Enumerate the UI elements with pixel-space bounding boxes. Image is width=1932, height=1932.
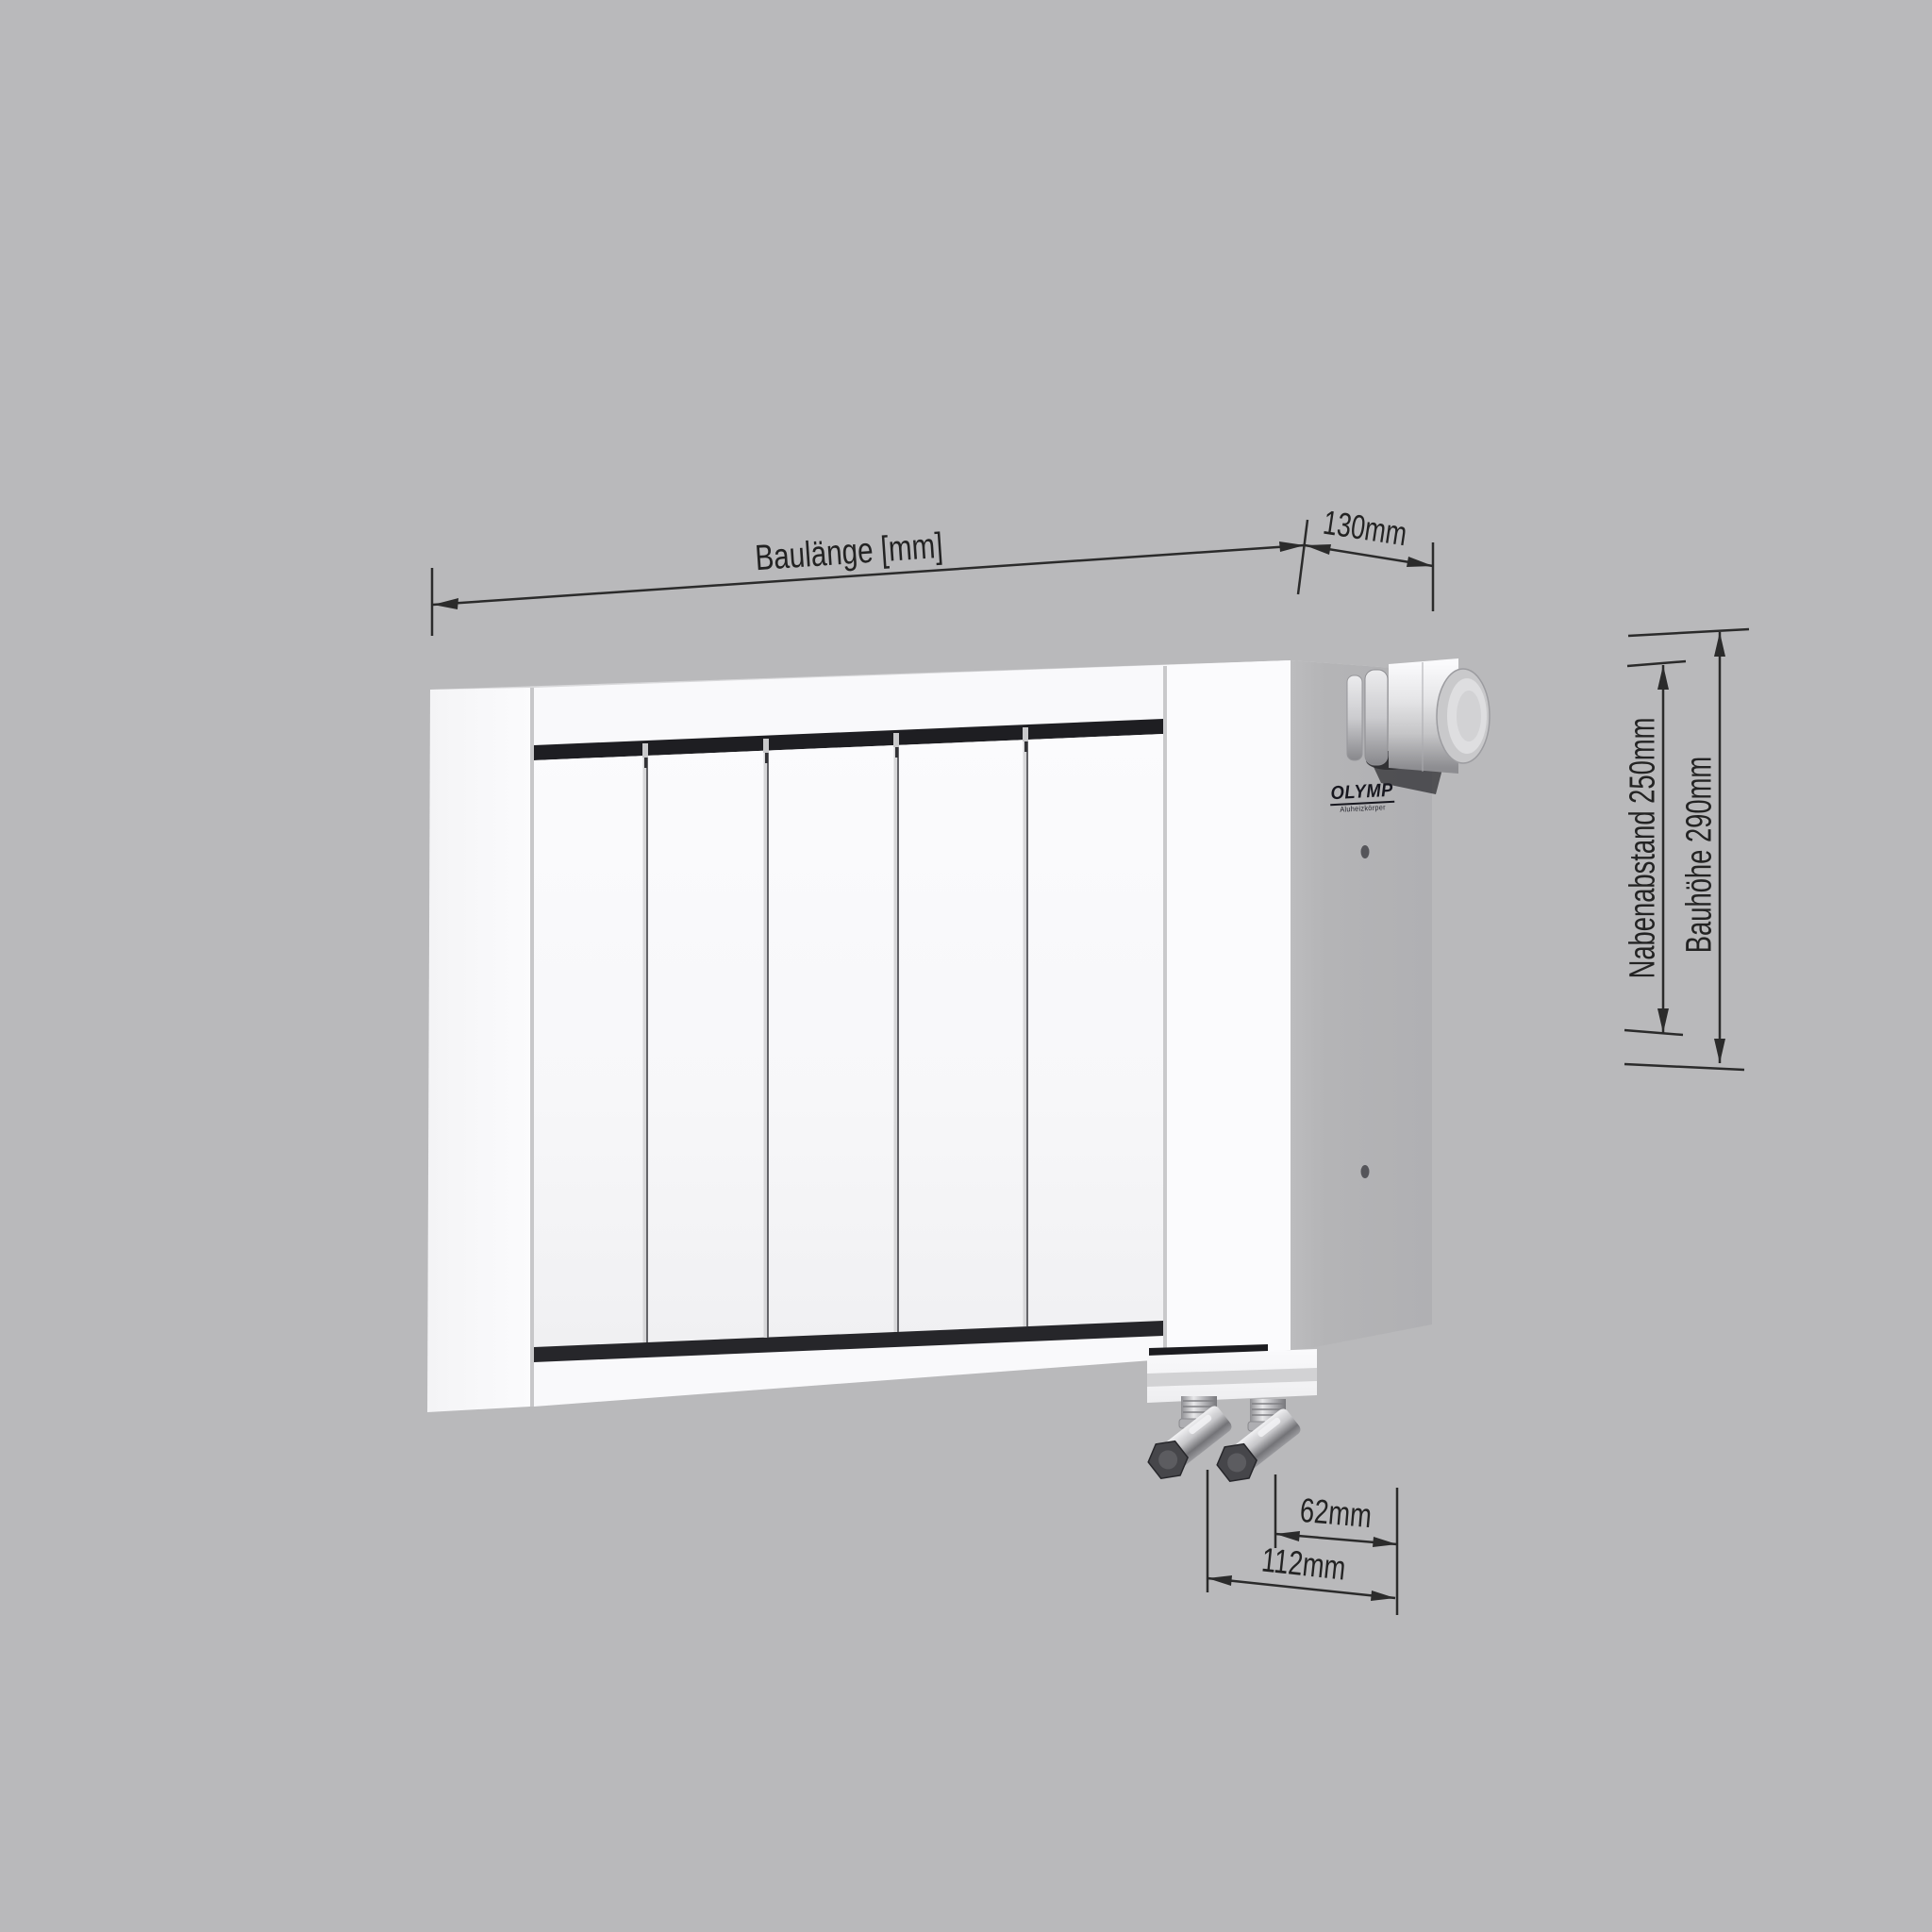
extension-line bbox=[1624, 1064, 1744, 1070]
extension-line bbox=[1628, 629, 1749, 636]
extension-line bbox=[1624, 1030, 1683, 1035]
arrowhead bbox=[1207, 1575, 1232, 1586]
valve-right bbox=[1211, 1399, 1306, 1489]
thermostat-knob bbox=[1347, 658, 1490, 774]
arrowhead bbox=[1305, 544, 1331, 555]
arrowhead bbox=[1407, 557, 1433, 567]
extension-line bbox=[1627, 661, 1686, 666]
bottom-bracket bbox=[1147, 1344, 1317, 1403]
panel-separator bbox=[1023, 727, 1028, 1326]
arrowhead bbox=[1657, 665, 1669, 690]
arrowhead bbox=[1371, 1591, 1395, 1601]
panel-separator bbox=[642, 743, 648, 1342]
radiator-right-column bbox=[1167, 660, 1291, 1358]
arrowhead bbox=[1373, 1537, 1397, 1547]
drawing-canvas: Baulänge [mm] 130mm Nabenabstand 250mm B… bbox=[0, 0, 1932, 1932]
hub-distance-label: Nabenabstand 250mm bbox=[1624, 718, 1664, 979]
cap-gap-line bbox=[530, 688, 534, 1407]
radiator-left-cap bbox=[427, 688, 530, 1412]
screw-hole bbox=[1361, 1165, 1370, 1178]
arrowhead bbox=[433, 598, 458, 609]
extension-line bbox=[1298, 520, 1307, 594]
arrowhead bbox=[1714, 632, 1725, 657]
brand-logo: OLYMP Aluheizkörper bbox=[1326, 781, 1398, 816]
panel-separator bbox=[893, 733, 899, 1332]
screw-hole bbox=[1361, 845, 1370, 858]
arrowhead bbox=[1714, 1039, 1725, 1063]
panel-separator bbox=[763, 739, 769, 1338]
valve-offset-inner-label: 62mm bbox=[1298, 1491, 1373, 1536]
radiator-panel-area bbox=[534, 734, 1163, 1347]
arrowhead bbox=[1275, 1531, 1300, 1541]
arrowhead bbox=[1657, 1008, 1669, 1033]
overall-height-label: Bauhöhe 290mm bbox=[1680, 757, 1721, 953]
